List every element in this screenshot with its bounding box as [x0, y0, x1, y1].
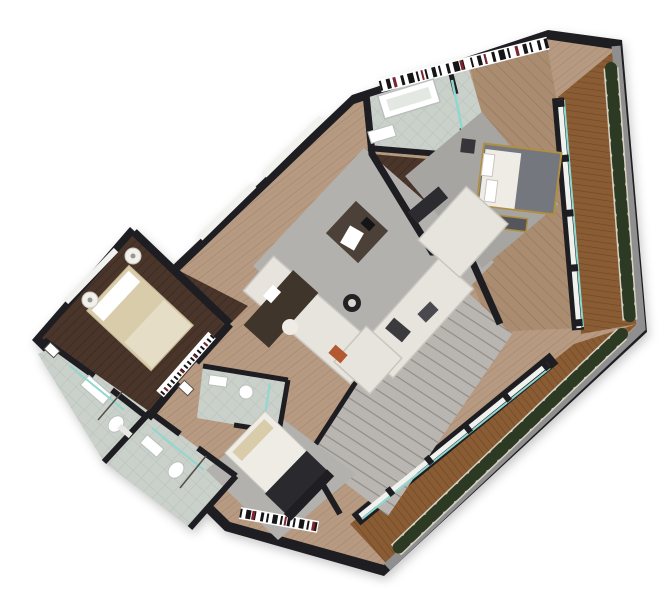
floor-plan-scene	[32, 30, 647, 576]
coffee-table-plate	[282, 319, 298, 335]
master-bed-pillow-2	[484, 179, 498, 202]
master-nightstand-1	[460, 138, 476, 154]
left-nightstand-1-lamp	[131, 254, 136, 259]
left-nightstand-2-lamp	[88, 298, 93, 303]
bath3-sink	[208, 375, 227, 387]
floor-plan-image	[0, 0, 660, 615]
floor-plan	[0, 0, 660, 615]
side-table-decor	[348, 299, 356, 307]
master-bed-pillow-1	[481, 153, 495, 176]
bath3-toilet	[239, 385, 253, 399]
